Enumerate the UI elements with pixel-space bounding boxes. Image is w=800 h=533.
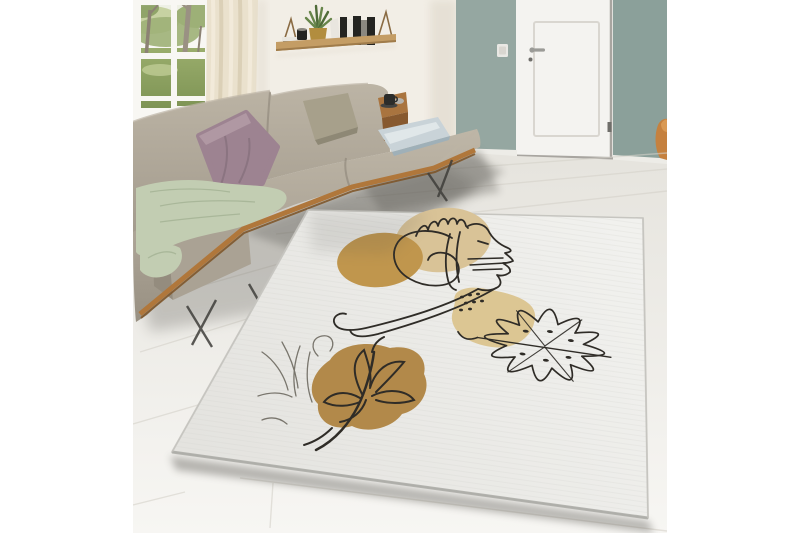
white-door	[516, 0, 613, 159]
product-photo-canvas	[0, 0, 800, 533]
light-switch	[497, 44, 508, 57]
door-hinge	[608, 122, 612, 132]
curtain-wall-shadow	[257, 0, 266, 104]
photo-area	[120, 0, 667, 533]
living-room-scene	[0, 0, 800, 533]
black-canister	[297, 28, 307, 40]
accent-wall-and-door	[456, 0, 667, 167]
